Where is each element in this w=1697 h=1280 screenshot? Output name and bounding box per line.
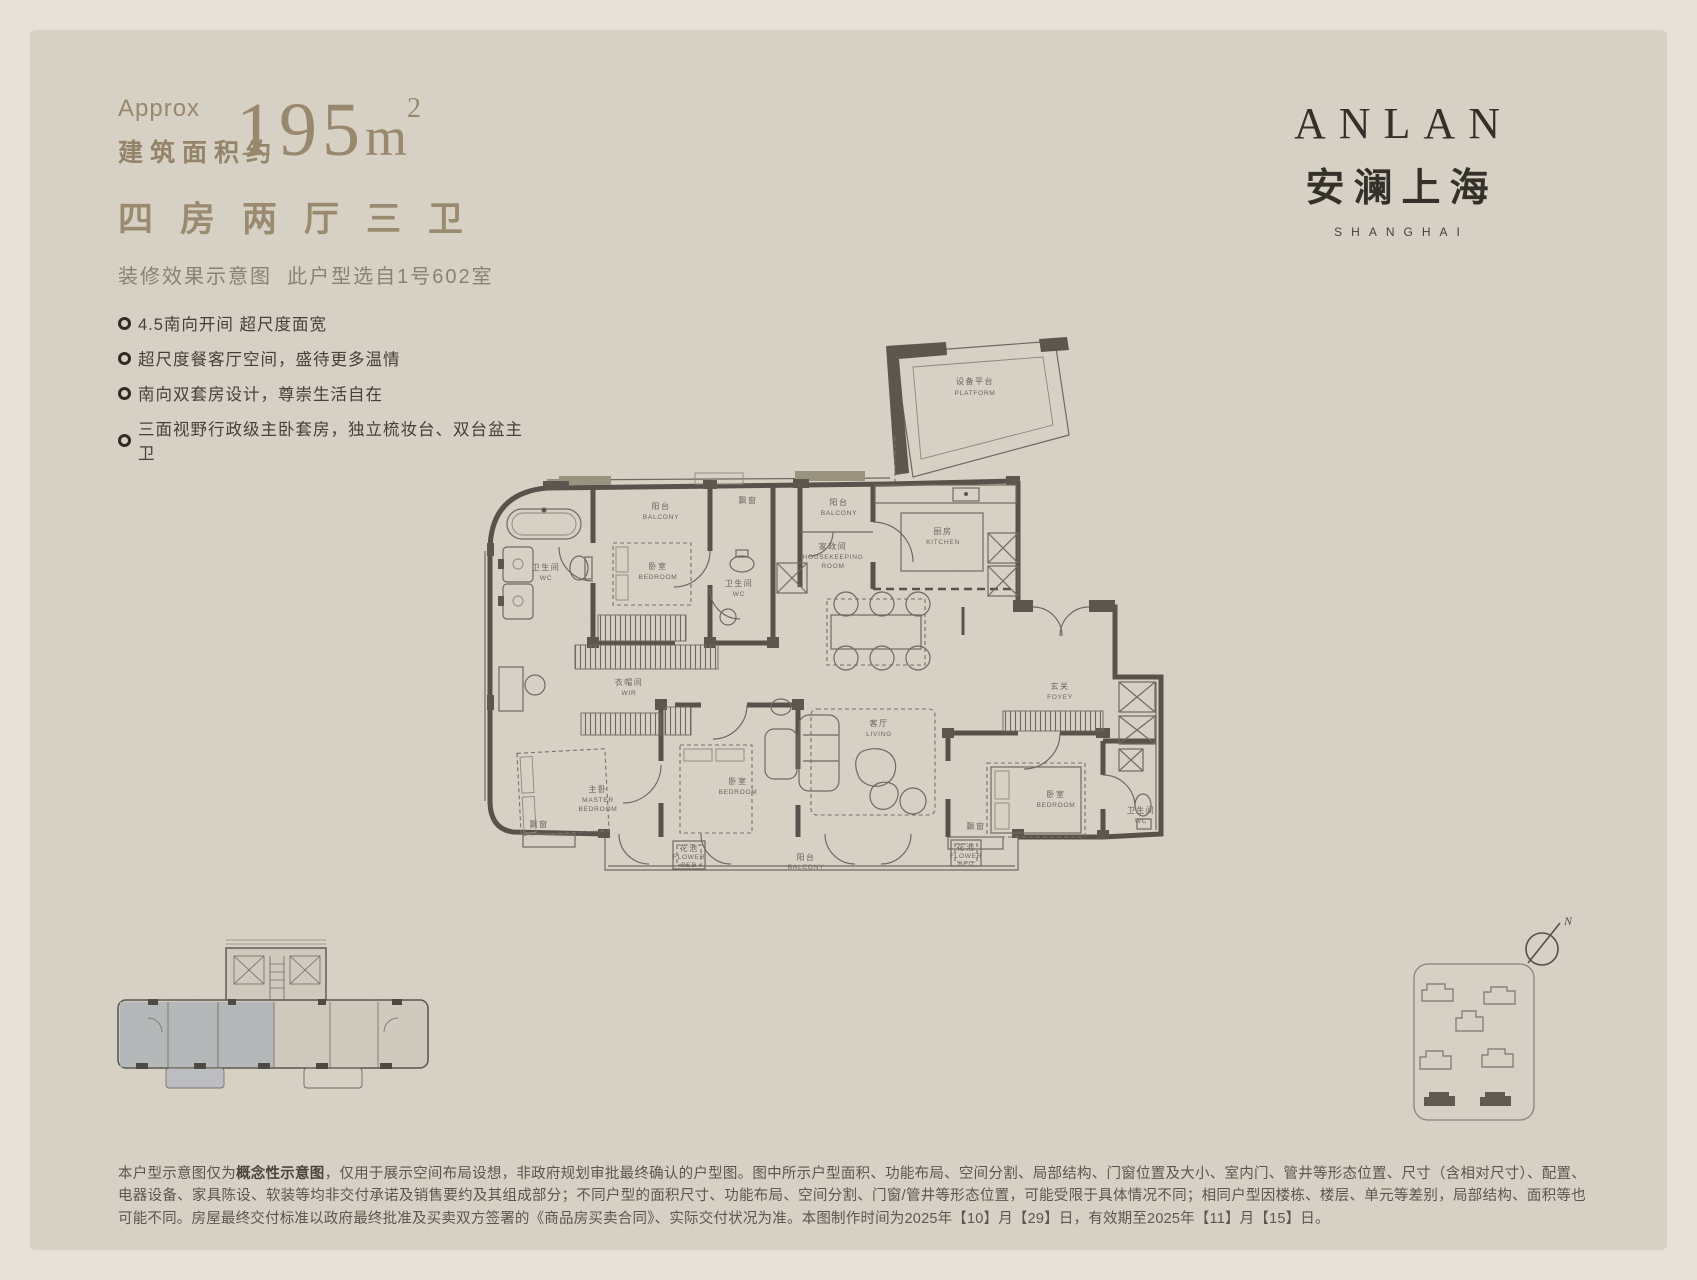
highlighted-unit [120, 1002, 274, 1067]
layout-char: 房 [180, 191, 215, 242]
north-label: N [1563, 914, 1573, 928]
svg-text:FOYEY: FOYEY [1047, 694, 1073, 701]
room-label-balcony-top: 阳台 [652, 501, 671, 511]
room-label-bedroom-right: 卧室 [1047, 789, 1066, 799]
area-unit: m [365, 107, 407, 167]
svg-text:BEDROOM: BEDROOM [1037, 802, 1076, 809]
svg-text:PLATFORM: PLATFORM [954, 390, 995, 397]
feature-text: 4.5南向开间 超尺度面宽 [138, 311, 327, 335]
bullet-icon [118, 387, 131, 400]
room-label-housekeeping: 家政间 [819, 541, 848, 551]
svg-text:WC: WC [1135, 818, 1147, 825]
feature-text: 南向双套房设计，尊崇生活自在 [138, 381, 383, 405]
svg-text:MASTER: MASTER [582, 797, 614, 804]
platform-wing [886, 337, 1069, 483]
layout-char: 卫 [428, 191, 463, 242]
svg-text:WC: WC [733, 591, 745, 598]
feature-item: 4.5南向开间 超尺度面宽 [118, 311, 538, 335]
brochure-canvas: Approx 建筑面积约 195m2 四 房 两 厅 三 卫 装修效果示意图 此… [30, 30, 1667, 1250]
room-label-living: 客厅 [870, 718, 889, 728]
bullet-icon [118, 434, 131, 447]
svg-text:FLOWER: FLOWER [673, 854, 705, 861]
bullet-icon [118, 317, 131, 330]
brand-name-en: ANLAN [1285, 98, 1522, 149]
svg-text:BEDROOM: BEDROOM [639, 574, 678, 581]
layout-char: 两 [242, 191, 277, 242]
svg-text:FLOWER: FLOWER [950, 853, 982, 860]
svg-text:ROOM: ROOM [821, 563, 844, 570]
svg-text:WIR: WIR [622, 690, 637, 697]
svg-text:WC: WC [540, 575, 552, 582]
disclaimer-bold: 概念性示意图 [236, 1166, 325, 1182]
room-label-bay-bottom-right: 飘窗 [967, 821, 986, 831]
layout-line: 四 房 两 厅 三 卫 [118, 191, 463, 242]
room-label-master-bedroom: 主卧 [589, 784, 608, 794]
wardrobes [575, 615, 1103, 735]
room-label-wc-mid: 卫生间 [725, 578, 754, 588]
room-label-foyer: 玄关 [1051, 681, 1070, 691]
room-label-wir: 衣帽间 [615, 677, 644, 687]
brand-city: SHANGHAI [1281, 225, 1522, 239]
svg-text:BEDROOM: BEDROOM [579, 806, 618, 813]
svg-text:BED: BED [681, 862, 697, 869]
room-label-flowerbed-right: 花池 [957, 842, 976, 852]
unit-note: 装修效果示意图 此户型选自1号602室 [118, 260, 538, 289]
room-label-kitchen: 厨房 [934, 526, 953, 536]
disclaimer-text: 本户型示意图仅为 [118, 1166, 236, 1182]
key-plan [108, 922, 438, 1112]
room-label-bedroom-mid: 卧室 [729, 776, 748, 786]
brand-logo: ANLAN 安澜上海 SHANGHAI [1272, 98, 1522, 239]
layout-char: 三 [366, 191, 401, 242]
feature-text: 超尺度餐客厅空间，盛待更多温情 [138, 346, 401, 370]
bullet-icon [118, 352, 131, 365]
highlighted-buildings [1424, 1092, 1511, 1106]
room-label-balcony-bottom: 阳台 [797, 852, 816, 862]
svg-text:HOUSEKEEPING: HOUSEKEEPING [802, 554, 863, 561]
svg-text:BALCONY: BALCONY [821, 510, 857, 517]
room-label-bay-bottom-left: 飘窗 [530, 819, 549, 829]
svg-text:BED: BED [958, 861, 974, 868]
room-label-flowerbed-left: 花池 [680, 843, 699, 853]
svg-text:BALCONY: BALCONY [643, 514, 679, 521]
room-label-wc-right: 卫生间 [1127, 805, 1156, 815]
layout-char: 厅 [304, 191, 339, 242]
room-label-wc-master: 卫生间 [532, 562, 561, 572]
disclaimer-text: ，仅用于展示空间布局设想，非政府规划审批最终确认的户型图。图中所示户型面积、功能… [118, 1166, 1586, 1227]
room-label-bedroom-top: 卧室 [649, 561, 668, 571]
site-plan [1406, 956, 1546, 1131]
layout-char: 四 [118, 191, 153, 242]
brand-name-cn: 安澜上海 [1281, 157, 1522, 213]
svg-text:LIVING: LIVING [866, 731, 892, 738]
svg-text:BEDROOM: BEDROOM [719, 789, 758, 796]
disclaimer: 本户型示意图仅为概念性示意图，仅用于展示空间布局设想，非政府规划审批最终确认的户… [118, 1163, 1586, 1230]
room-label-bay-top: 飘窗 [739, 495, 758, 505]
room-label-balcony-mid: 阳台 [830, 497, 849, 507]
building-footprints [1420, 984, 1515, 1069]
svg-text:BALCONY: BALCONY [788, 864, 824, 871]
area-value: 195 [236, 88, 365, 172]
svg-text:KITCHEN: KITCHEN [926, 539, 960, 546]
area-exponent: 2 [407, 93, 421, 124]
floorplan: 设备平台 PLATFORM 阳台 BALCONY 飘窗 卧室 BEDROOM 卫… [443, 337, 1168, 882]
room-label-platform: 设备平台 [956, 376, 994, 386]
area-figure: 195m2 [236, 87, 421, 174]
